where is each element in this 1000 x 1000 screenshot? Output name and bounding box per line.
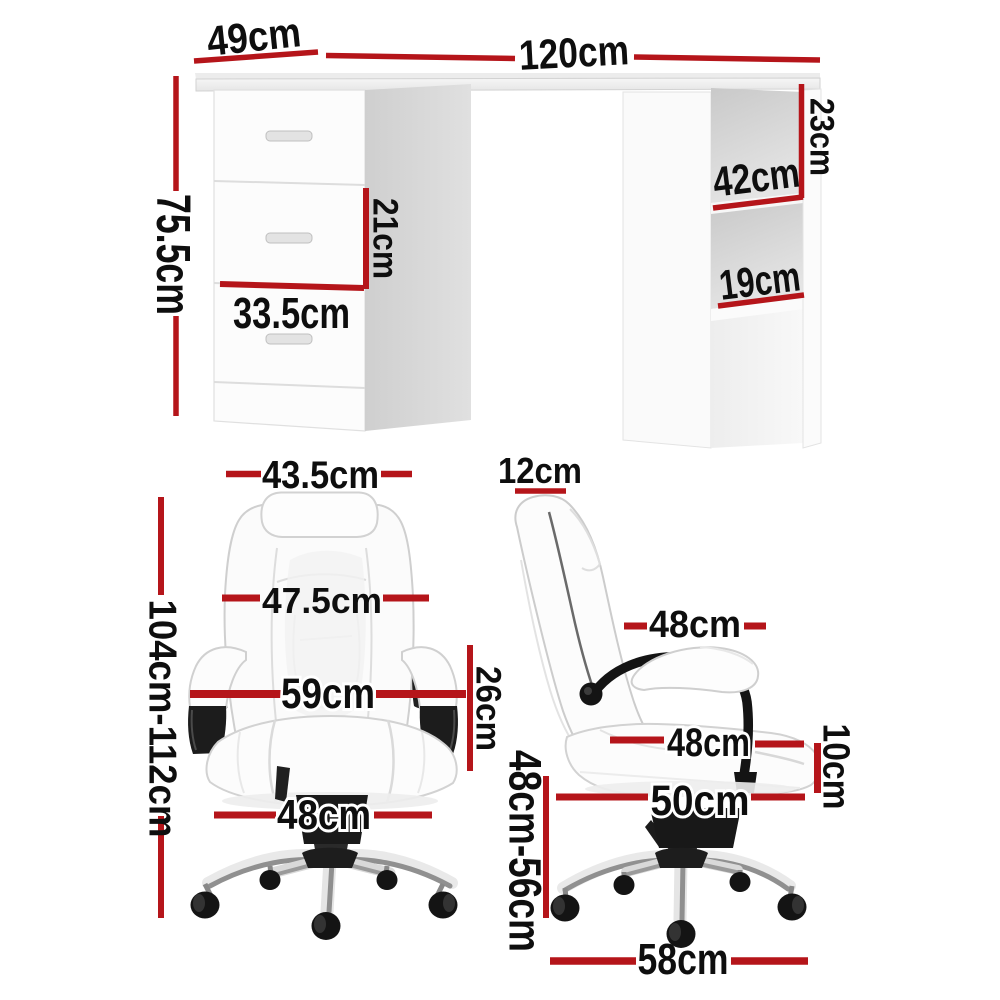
svg-text:33.5cm: 33.5cm [233,289,350,338]
svg-text:26cm: 26cm [469,666,508,751]
svg-text:104cm-112cm: 104cm-112cm [141,600,184,838]
svg-text:49cm: 49cm [205,8,303,65]
svg-text:43.5cm: 43.5cm [262,454,379,497]
svg-text:21cm: 21cm [366,198,405,279]
svg-text:47.5cm: 47.5cm [262,580,382,621]
svg-text:48cm-56cm: 48cm-56cm [500,750,551,952]
svg-text:23cm: 23cm [803,98,841,176]
svg-text:10cm: 10cm [815,724,857,810]
svg-text:48cm: 48cm [649,604,741,646]
svg-text:59cm: 59cm [281,670,375,718]
svg-text:75.5cm: 75.5cm [146,194,199,315]
svg-text:48cm: 48cm [277,791,371,838]
svg-text:48cm: 48cm [667,721,750,765]
svg-text:120cm: 120cm [518,26,630,79]
svg-text:50cm: 50cm [651,777,750,825]
svg-text:12cm: 12cm [498,450,582,491]
svg-text:58cm: 58cm [638,935,729,984]
svg-text:19cm: 19cm [717,252,803,309]
